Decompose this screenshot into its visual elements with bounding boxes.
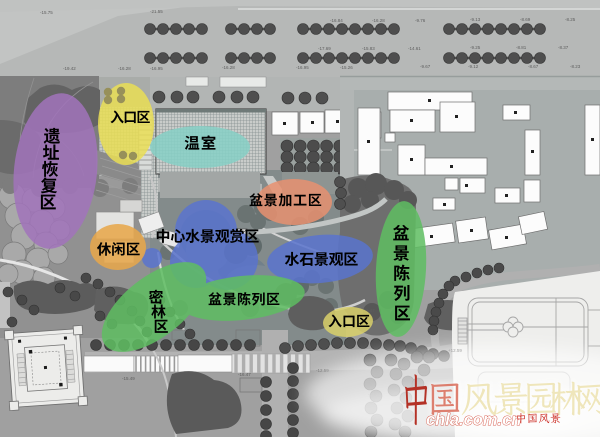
svg-text:-21.55: -21.55 <box>150 9 163 14</box>
svg-text:-9.13: -9.13 <box>470 17 481 22</box>
svg-text:-19.42: -19.42 <box>63 66 76 71</box>
svg-text:-8.37: -8.37 <box>558 45 569 50</box>
svg-text:-15.75: -15.75 <box>40 10 53 15</box>
svg-text:-9.12: -9.12 <box>468 64 479 69</box>
svg-text:-8.81: -8.81 <box>516 45 527 50</box>
svg-text:-15.83: -15.83 <box>362 46 375 51</box>
svg-text:-16.84: -16.84 <box>330 18 343 23</box>
svg-text:chla.com.cn: chla.com.cn <box>426 411 521 429</box>
svg-text:-8.69: -8.69 <box>520 17 531 22</box>
svg-text:-8.23: -8.23 <box>570 64 581 69</box>
svg-text:-8.67: -8.67 <box>528 64 539 69</box>
svg-text:-16.95: -16.95 <box>296 65 309 70</box>
svg-text:-9.25: -9.25 <box>470 45 481 50</box>
svg-text:-16.28: -16.28 <box>372 18 385 23</box>
svg-text:-17.69: -17.69 <box>318 46 331 51</box>
svg-text:-16.28: -16.28 <box>222 65 235 70</box>
svg-text:-16.28: -16.28 <box>118 66 131 71</box>
svg-text:-15.26: -15.26 <box>340 65 353 70</box>
svg-text:-9.76: -9.76 <box>415 18 426 23</box>
svg-text:-15.49: -15.49 <box>122 376 135 381</box>
svg-text:-16.95: -16.95 <box>150 66 163 71</box>
svg-text:-16.47: -16.47 <box>238 372 251 377</box>
svg-text:-9.67: -9.67 <box>420 64 431 69</box>
svg-text:-14.61: -14.61 <box>408 46 421 51</box>
svg-text:-8.25: -8.25 <box>565 17 576 22</box>
